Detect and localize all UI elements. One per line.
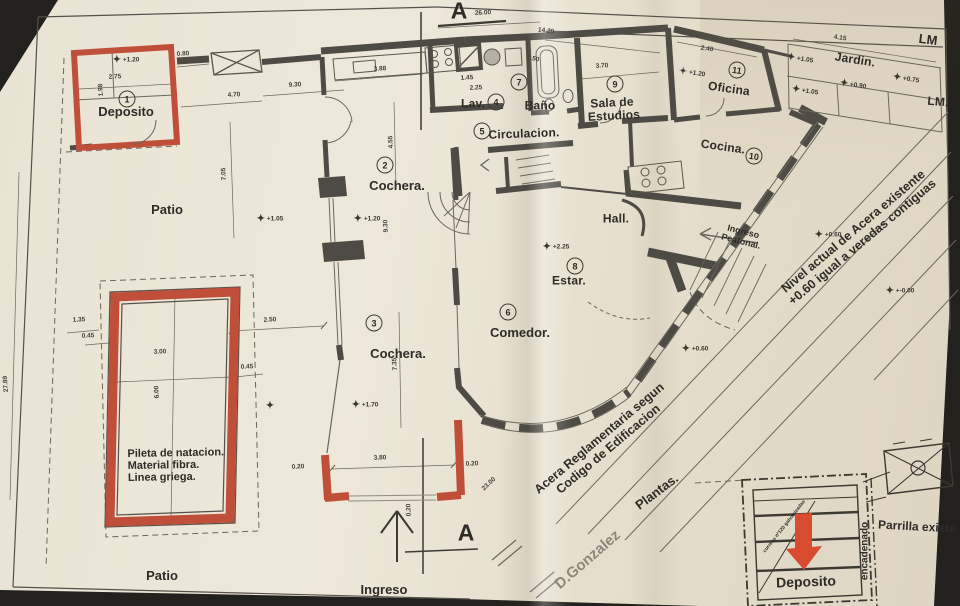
dim-label: 2.50 xyxy=(263,316,276,324)
level-star-icon: ✦ xyxy=(678,66,688,78)
level-marker: ✦ +1.20 xyxy=(113,56,140,63)
level-marker: ✦ +1.70 xyxy=(352,401,379,408)
level-star-icon: ✦ xyxy=(543,241,551,252)
room-label-sala-2: Estudios xyxy=(588,108,641,124)
room-label-bano: Baño xyxy=(525,100,556,113)
stairs xyxy=(428,155,766,322)
dim-label: 1.35 xyxy=(73,316,86,323)
legend-encadenado-label: encadenado xyxy=(861,522,872,580)
stair-arrow-icon xyxy=(481,159,489,171)
room-label-circulacion: Circulacion. xyxy=(488,126,560,141)
dim-label: 0.20 xyxy=(292,463,305,470)
dim-label: 0.20 xyxy=(405,504,412,517)
garage-left-jamb xyxy=(325,455,349,500)
garage-right-jamb xyxy=(437,420,461,497)
room-circle-7: 7 xyxy=(511,74,528,91)
level-star-icon: ✦ xyxy=(113,54,121,65)
dim-label: 0.80 xyxy=(176,50,189,58)
dim-label: 0.45 xyxy=(82,332,95,339)
area-label-hall: Hall. xyxy=(603,213,629,226)
room-circle-8: 8 xyxy=(567,258,584,275)
level-star-icon: ✦ xyxy=(354,213,362,224)
level-star-icon: ✦ xyxy=(266,400,274,411)
room-circle-3: 3 xyxy=(366,315,383,332)
dim-label: 0.20 xyxy=(466,460,479,467)
dim-label: 3.80 xyxy=(374,454,387,461)
pool-text: Pileta de natacion. Material fibra. Line… xyxy=(127,447,224,484)
level-star-icon: ✦ xyxy=(791,83,801,95)
dim-label: 3.00 xyxy=(154,348,167,355)
level-star-icon: ✦ xyxy=(352,399,360,410)
level-star-icon: ✦ xyxy=(682,343,690,354)
label-lm-top: LM xyxy=(918,32,938,48)
dim-label: 3.70 xyxy=(595,62,608,70)
room-label-cochera2: Cochera. xyxy=(369,179,425,193)
level-marker: ✦ +-0.00 xyxy=(886,287,915,294)
label-lm-right: LM. xyxy=(927,95,949,110)
pool-line-3: Linea griega. xyxy=(128,471,225,485)
dim-label: 6.00 xyxy=(153,386,160,399)
pool xyxy=(105,287,240,527)
dim-label: 7.05 xyxy=(220,167,228,180)
area-label-patio-bottom: Patio xyxy=(146,569,178,583)
room-circle-2: 2 xyxy=(377,157,394,174)
dim-label: 27.89 xyxy=(2,376,10,393)
level-star-icon: ✦ xyxy=(839,77,849,89)
dim-label: 2.25 xyxy=(469,84,482,92)
dim-label: 9.30 xyxy=(288,81,301,89)
section-mark-a-top: A xyxy=(451,0,468,23)
section-mark-a-bottom: A xyxy=(458,521,475,546)
level-marker: ✦ +1.05 xyxy=(257,215,284,222)
level-marker: ✦ xyxy=(266,402,274,409)
room-label-estar: Estar. xyxy=(552,275,586,288)
dim-label: 4.70 xyxy=(227,91,240,99)
dim-label: 0.45 xyxy=(241,363,254,370)
level-marker: ✦ +2.25 xyxy=(543,243,570,250)
level-star-icon: ✦ xyxy=(892,71,902,83)
room-circle-6: 6 xyxy=(500,304,517,321)
level-star-icon: ✦ xyxy=(257,213,265,224)
area-label-patio-top: Patio xyxy=(151,203,183,217)
level-star-icon: ✦ xyxy=(886,285,894,296)
level-star-icon: ✦ xyxy=(786,51,796,63)
dim-label: 3.88 xyxy=(373,65,386,73)
level-marker: ✦ +0.60 xyxy=(815,231,842,238)
room-label-lav: Lav. xyxy=(461,98,485,111)
room-label-deposito: Deposito xyxy=(98,105,154,119)
legend-deposito-label: Deposito xyxy=(776,573,836,590)
dim-label: 7.35 xyxy=(391,357,399,370)
dim-label: 1.98 xyxy=(97,83,105,96)
area-label-ingreso: Ingreso xyxy=(361,583,408,597)
room-circle-9: 9 xyxy=(607,76,624,93)
level-star-icon: ✦ xyxy=(815,229,823,240)
dim-label: 2.75 xyxy=(108,73,121,81)
level-marker: ✦ +1.20 xyxy=(354,215,381,222)
dim-label: 26.00 xyxy=(475,9,492,17)
floor-plan-photo: { "section_marks": { "top": "A", "bottom… xyxy=(0,0,960,606)
room-circle-4: 4 xyxy=(488,94,505,111)
dim-label: 1.45 xyxy=(460,74,473,82)
dim-label: 9.30 xyxy=(382,219,390,232)
level-marker: ✦ +0.60 xyxy=(682,345,709,352)
ingreso-arrow-icon xyxy=(381,511,413,562)
dim-label: 4.55 xyxy=(387,135,395,148)
room-label-comedor: Comedor. xyxy=(490,326,550,340)
